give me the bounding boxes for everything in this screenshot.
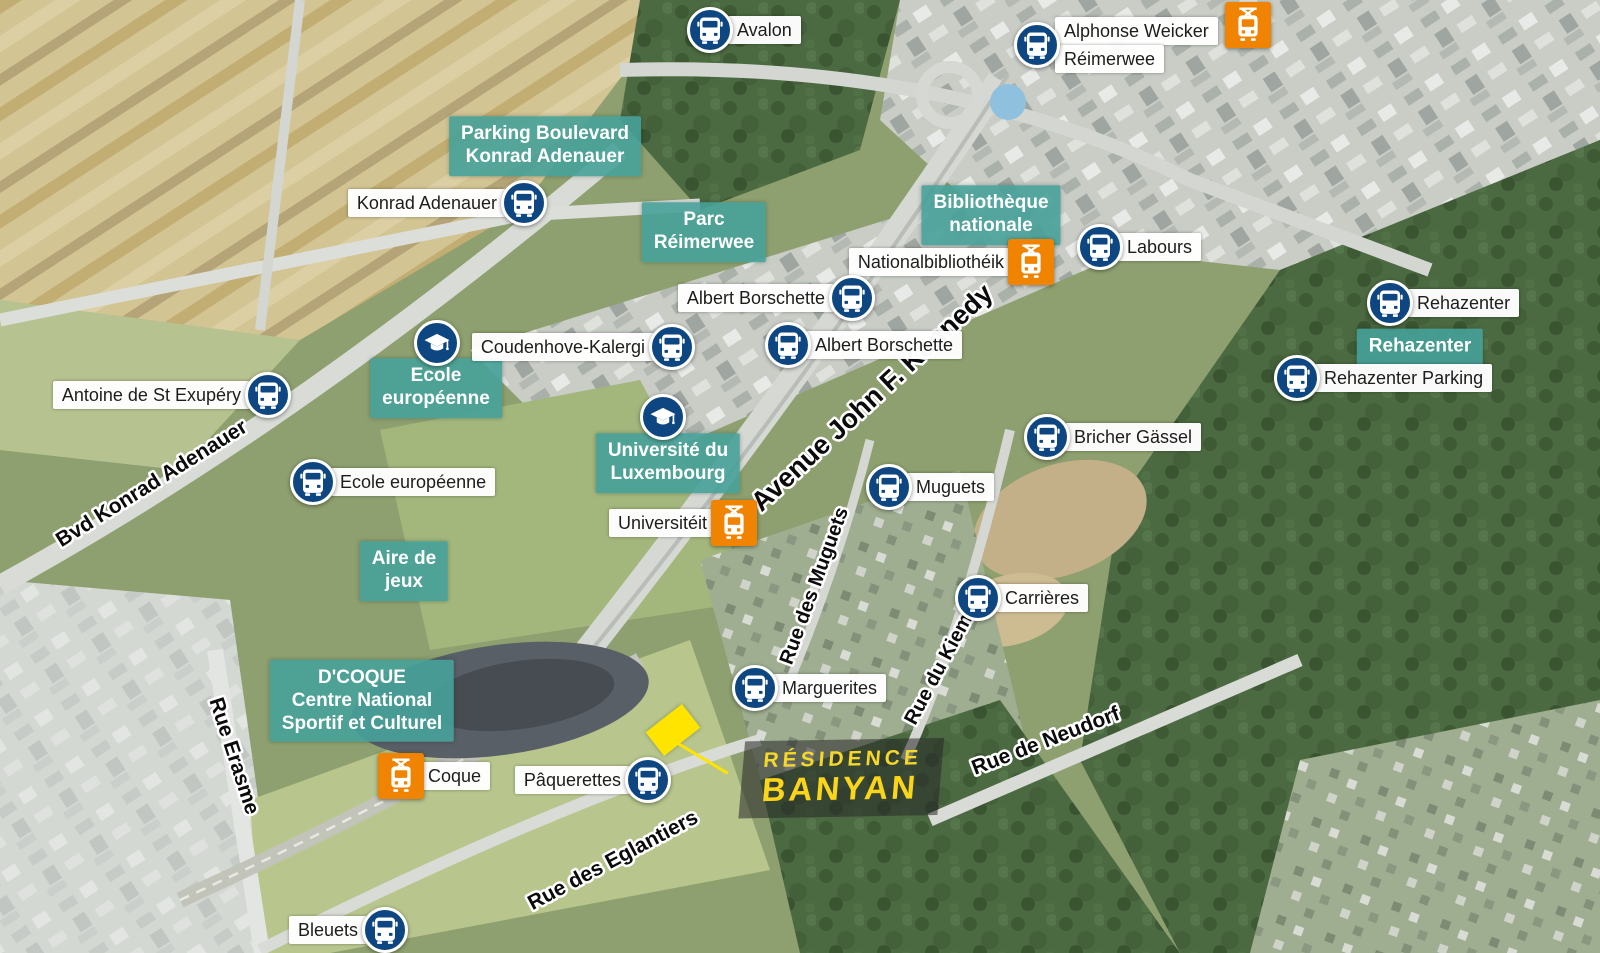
bus-stop-icon (687, 7, 733, 53)
poi-label: Ecoleeuropéenne (370, 358, 502, 418)
poi-label: Université duLuxembourg (596, 433, 740, 493)
bus-stop-icon (866, 464, 912, 510)
stop-label-line: Rehazenter Parking (1315, 364, 1492, 392)
bus-stop-label: Labours (1118, 233, 1201, 261)
tram-stop-icon (1225, 2, 1271, 48)
poi-label-line: Luxembourg (608, 463, 728, 486)
poi-label-line: Bibliothèque (933, 192, 1048, 215)
poi-label-line: Ecole (382, 365, 490, 388)
poi-label: Bibliothèquenationale (921, 185, 1060, 245)
poi-label-line: Sportif et Culturel (282, 712, 442, 735)
bus-stop-icon (290, 459, 336, 505)
poi-label: D'COQUECentre NationalSportif et Culture… (270, 660, 454, 742)
stop-label-line: Marguerites (773, 674, 886, 702)
bus-stop-label: Antoine de St Exupéry (53, 381, 250, 409)
bus-stop-label: Bleuets (289, 916, 367, 944)
bus-stop-icon (955, 575, 1001, 621)
poi-label: Rehazenter (1357, 329, 1483, 366)
stop-label-line: Bleuets (289, 916, 367, 944)
graduation-cap-icon (414, 320, 460, 366)
stop-label-line: Universitéit (609, 509, 716, 537)
poi-label-line: Université du (608, 440, 728, 463)
stop-label-line: Rehazenter (1408, 289, 1519, 317)
poi-label-line: Centre National (282, 690, 442, 713)
tram-stop-label: Universitéit (609, 509, 716, 537)
stop-label-line: Nationalbibliothéik (849, 248, 1013, 276)
bus-stop-label: Muguets (907, 473, 994, 501)
poi-label-line: Konrad Adenauer (461, 146, 629, 169)
bus-stop-label: Ecole européenne (331, 468, 495, 496)
poi-label-line: européenne (382, 388, 490, 411)
poi-label-line: Aire de (372, 548, 436, 571)
tram-stop-icon (1008, 239, 1054, 285)
stop-label-line: Carrières (996, 584, 1088, 612)
bus-stop-icon (362, 907, 408, 953)
stop-label-line: Coudenhove-Kalergi (472, 333, 654, 361)
stop-label-line: Antoine de St Exupéry (53, 381, 250, 409)
bus-stop-icon (1077, 224, 1123, 270)
bus-stop-icon (829, 275, 875, 321)
bus-stop-icon (1014, 22, 1060, 68)
stop-label-line: Albert Borschette (678, 284, 834, 312)
poi-label: Parking BoulevardKonrad Adenauer (449, 116, 641, 176)
bus-stop-icon (732, 665, 778, 711)
poi-label-line: Parc (654, 209, 754, 232)
bus-stop-icon (1274, 355, 1320, 401)
tram-stop-label: Coque (419, 762, 490, 790)
stop-label-line: Alphonse Weicker (1055, 17, 1218, 45)
residence-name: BANYAN (759, 770, 921, 807)
bus-stop-icon (625, 757, 671, 803)
map-canvas: Avenue John F. KennedyBvd Konrad Adenaue… (0, 0, 1600, 953)
bus-stop-icon (1367, 280, 1413, 326)
bus-stop-label: Rehazenter (1408, 289, 1519, 317)
residence-banyan-callout: RÉSIDENCE BANYAN (738, 738, 943, 818)
bus-stop-label: Bricher Gässel (1065, 423, 1201, 451)
poi-label: Aire dejeux (360, 541, 448, 601)
stop-label-line: Réimerwee (1055, 45, 1164, 73)
stop-label-line: Ecole européenne (331, 468, 495, 496)
bus-stop-icon (1024, 414, 1070, 460)
poi-label-line: jeux (372, 571, 436, 594)
graduation-cap-icon (640, 394, 686, 440)
bus-stop-label: Pâquerettes (515, 766, 630, 794)
stop-label-line: Avalon (728, 16, 801, 44)
poi-label-line: Rehazenter (1369, 336, 1471, 359)
bus-stop-label: Rehazenter Parking (1315, 364, 1492, 392)
poi-label-line: nationale (933, 215, 1048, 238)
tram-stop-label: Nationalbibliothéik (849, 248, 1013, 276)
bus-stop-label: Coudenhove-Kalergi (472, 333, 654, 361)
stop-label-line: Bricher Gässel (1065, 423, 1201, 451)
bus-stop-label: Albert Borschette (678, 284, 834, 312)
stop-label-line: Albert Borschette (806, 331, 962, 359)
tram-stop-icon (711, 500, 757, 546)
bus-stop-label: Carrières (996, 584, 1088, 612)
stop-label-line: Konrad Adenauer (348, 189, 506, 217)
tram-stop-icon (378, 753, 424, 799)
poi-label-line: Parking Boulevard (461, 123, 629, 146)
stop-label-line: Coque (419, 762, 490, 790)
stop-label-line: Pâquerettes (515, 766, 630, 794)
bus-stop-icon (245, 372, 291, 418)
bus-stop-label: Konrad Adenauer (348, 189, 506, 217)
stop-label-line: Labours (1118, 233, 1201, 261)
poi-label-line: D'COQUE (282, 667, 442, 690)
bus-stop-icon (501, 180, 547, 226)
bus-stop-label: Avalon (728, 16, 801, 44)
bus-stop-label: Marguerites (773, 674, 886, 702)
bus-stop-label: Albert Borschette (806, 331, 962, 359)
bus-stop-icon (649, 324, 695, 370)
stop-label-line: Muguets (907, 473, 994, 501)
bus-stop-icon (765, 322, 811, 368)
poi-label: ParcRéimerwee (642, 202, 766, 262)
poi-label-line: Réimerwee (654, 232, 754, 255)
bus-stop-label: Alphonse WeickerRéimerwee (1055, 17, 1218, 73)
